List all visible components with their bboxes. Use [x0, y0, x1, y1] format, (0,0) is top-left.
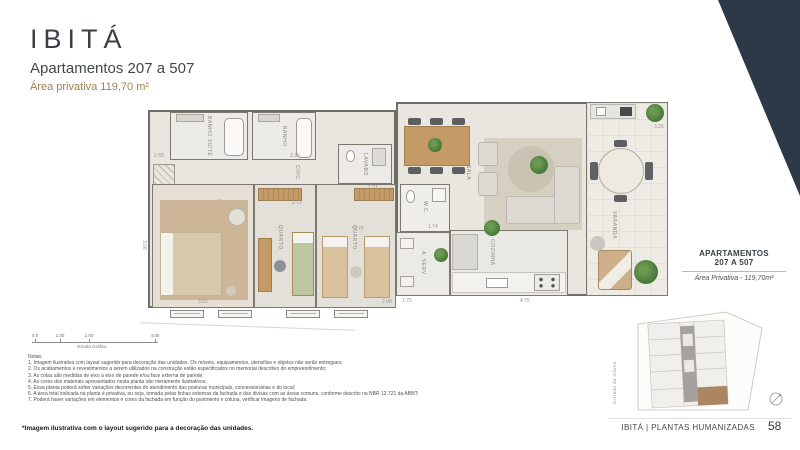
room-label: LAVABO — [362, 153, 368, 176]
vanity — [258, 114, 280, 122]
page-subtitle: Apartamentos 207 a 507 — [30, 60, 194, 77]
room-label: CIRC. — [294, 165, 300, 182]
unit-info-area: Área Privativa - 119,70m² — [672, 275, 796, 282]
window-marker — [334, 310, 368, 318]
side-table — [226, 286, 236, 296]
private-area-line: Área privativa 119,70 m² — [30, 81, 149, 93]
unit-info-divider — [682, 271, 786, 272]
building-footprint — [648, 320, 728, 408]
unit-info-range: 207 A 507 — [672, 258, 796, 267]
window-marker — [218, 310, 252, 318]
plant-icon — [646, 104, 664, 122]
scale-tick — [60, 339, 61, 343]
room-circ: CIRC. — [286, 160, 308, 186]
dimension-label: 2.72 — [292, 200, 302, 206]
street-label: Estrada da Gávea — [612, 332, 617, 404]
armchair — [478, 172, 498, 196]
scale-tick — [89, 339, 90, 343]
room-label: VARANDA — [611, 211, 617, 239]
sofa-chaise — [554, 166, 580, 224]
plant-icon — [530, 156, 548, 174]
plant-icon — [428, 138, 442, 152]
scale-value: 2.00 — [85, 333, 94, 338]
room-label: BANHO SUÍTE — [206, 116, 212, 157]
room-label: COZINHA — [489, 239, 495, 266]
window-marker — [170, 310, 204, 318]
window-marker — [286, 310, 320, 318]
compass-icon — [770, 393, 782, 405]
double-bed — [160, 232, 222, 296]
dining-chair — [452, 118, 465, 125]
dining-chair — [408, 167, 421, 174]
dimension-label: 4.75 — [520, 298, 530, 304]
scale-bar-line — [32, 342, 158, 343]
key-plan-map — [626, 304, 796, 426]
floor-plan: BANHO SUÍTE BANHO CIRC. LAVABO SUÍTE QUA… — [140, 90, 672, 330]
brochure-page: IBITÁ Apartamentos 207 a 507 Área privat… — [0, 0, 800, 450]
page-title: IBITÁ — [30, 24, 128, 55]
laundry-tank — [400, 238, 414, 249]
single-bed — [292, 232, 314, 296]
dining-chair — [408, 118, 421, 125]
desk-chair — [274, 260, 286, 272]
armchair — [228, 208, 246, 226]
balcony-sink — [596, 107, 606, 116]
single-bed — [322, 236, 348, 298]
lounge-chair — [598, 250, 632, 290]
scale-value: 4.00 — [151, 333, 160, 338]
footer-divider — [608, 418, 792, 419]
single-bed — [364, 236, 390, 298]
dining-chair — [430, 167, 443, 174]
scale-value: 1.00 — [56, 333, 65, 338]
room-label: BANHO — [281, 126, 287, 147]
dimension-label: 1.74 — [428, 224, 438, 230]
dimension-label: 3.26 — [654, 124, 664, 130]
stove — [534, 274, 560, 291]
dimension-label: 1.71 — [368, 185, 378, 191]
balcony-chair — [614, 195, 627, 202]
dining-chair — [452, 167, 465, 174]
dimension-label: 1.75 — [402, 298, 412, 304]
disclaimer-footnote: *Imagem ilustrativa com o layout sugerid… — [22, 425, 253, 432]
scale-tick — [155, 339, 156, 343]
footer-brand: IBITÁ | PLANTAS HUMANIZADAS — [600, 423, 755, 432]
corner-accent-triangle — [718, 0, 800, 196]
dimension-label: 3.08 — [141, 240, 147, 250]
highlighted-unit — [697, 386, 728, 406]
unit-info-card: APARTAMENTOS 207 A 507 Área Privativa - … — [672, 249, 796, 282]
room-label: A. SERV. — [420, 251, 426, 276]
scale-bar: 0.5 1.00 2.00 4.00 Escala Gráfica — [32, 334, 160, 350]
bathtub — [224, 118, 244, 156]
vanity — [176, 114, 204, 122]
washbasin — [372, 148, 386, 166]
balcony-chair — [645, 162, 653, 180]
shower-box — [432, 188, 446, 202]
plant-icon — [634, 260, 658, 284]
grill — [620, 107, 632, 116]
toilet — [406, 190, 415, 203]
dining-chair — [430, 118, 443, 125]
plant-icon — [434, 248, 448, 262]
balcony-chair — [590, 162, 598, 180]
room-label: W.C. — [422, 201, 428, 214]
washing-machine — [400, 276, 414, 287]
kitchen-cabinet — [452, 234, 478, 270]
note-item: 7. Poderá haver variações em elementos e… — [28, 397, 458, 403]
pouf — [350, 266, 362, 278]
room-label: QUARTO — [277, 225, 283, 250]
room-label: SALA — [465, 165, 471, 180]
dimension-label: 3.92 — [198, 299, 208, 305]
dimension-label: 2.78 — [354, 226, 364, 232]
bathtub — [296, 118, 312, 158]
page-number: 58 — [768, 419, 781, 433]
toilet — [346, 150, 355, 162]
scale-tick — [35, 339, 36, 343]
notes-block: Notas: 1. Imagem ilustrativa com layout … — [28, 354, 458, 404]
desk — [258, 238, 272, 292]
dimension-label: 2.36 — [290, 153, 300, 159]
facade-outline — [140, 322, 355, 331]
dimension-label: 2.55 — [154, 153, 164, 159]
plant-icon — [484, 220, 500, 236]
pouf — [590, 236, 605, 251]
scale-value: 0.5 — [32, 333, 38, 338]
scale-bar-label: Escala Gráfica — [57, 344, 127, 349]
balcony-chair — [614, 140, 627, 147]
kitchen-sink — [486, 278, 508, 288]
dimension-label: 2.08 — [382, 299, 392, 305]
armchair — [478, 142, 498, 166]
unit-info-title: APARTAMENTOS — [672, 249, 796, 258]
balcony-table — [598, 148, 644, 194]
